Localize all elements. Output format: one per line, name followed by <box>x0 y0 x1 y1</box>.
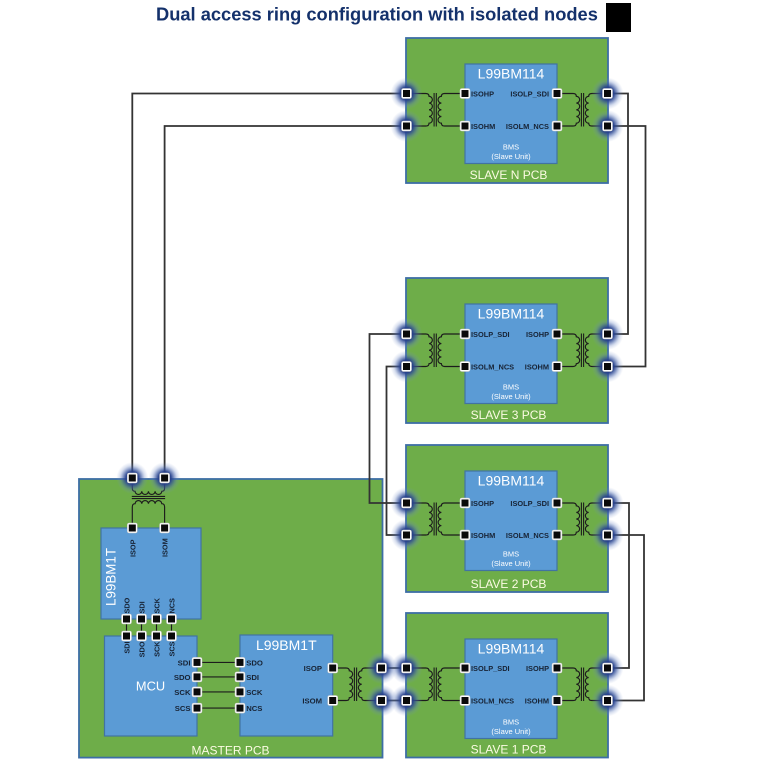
svg-text:SDO: SDO <box>123 597 132 613</box>
svg-text:SLAVE 3 PCB: SLAVE 3 PCB <box>471 408 547 422</box>
svg-text:ISOP: ISOP <box>128 539 137 557</box>
svg-text:ISOLP_SDI: ISOLP_SDI <box>510 499 549 508</box>
svg-text:ISOHP: ISOHP <box>526 330 549 339</box>
svg-text:BMS: BMS <box>503 550 519 559</box>
svg-text:(Slave Unit): (Slave Unit) <box>491 152 531 161</box>
svg-text:ISOLP_SDI: ISOLP_SDI <box>471 664 510 673</box>
svg-text:SCK: SCK <box>153 641 162 657</box>
svg-text:(Slave Unit): (Slave Unit) <box>491 392 531 401</box>
svg-text:SDO: SDO <box>138 641 147 657</box>
svg-text:ISOLP_SDI: ISOLP_SDI <box>471 330 510 339</box>
svg-text:L99BM1T: L99BM1T <box>104 548 119 606</box>
svg-text:ISOHM: ISOHM <box>471 122 495 131</box>
svg-text:SCS: SCS <box>175 704 191 713</box>
svg-text:SDO: SDO <box>174 673 191 682</box>
svg-text:Dual access ring configuration: Dual access ring configuration with isol… <box>156 4 598 25</box>
svg-text:SCK: SCK <box>153 597 162 613</box>
svg-text:ISOLM_NCS: ISOLM_NCS <box>471 696 514 705</box>
svg-text:SDI: SDI <box>178 658 191 667</box>
svg-text:ISOLP_SDI: ISOLP_SDI <box>510 89 549 98</box>
svg-text:SDO: SDO <box>246 658 263 667</box>
svg-text:BMS: BMS <box>503 718 519 727</box>
svg-text:SDI: SDI <box>123 642 132 654</box>
svg-text:ISOP: ISOP <box>304 664 322 673</box>
svg-text:L99BM114: L99BM114 <box>478 66 545 82</box>
svg-text:NCS: NCS <box>168 598 177 614</box>
svg-text:(Slave Unit): (Slave Unit) <box>491 727 531 736</box>
svg-text:ISOM: ISOM <box>160 538 169 557</box>
svg-text:ISOHM: ISOHM <box>471 531 495 540</box>
svg-text:ISOHM: ISOHM <box>525 696 549 705</box>
svg-text:BMS: BMS <box>503 143 519 152</box>
svg-text:ISOHP: ISOHP <box>471 499 494 508</box>
svg-text:ISOHP: ISOHP <box>471 89 494 98</box>
svg-text:ISOLM_NCS: ISOLM_NCS <box>506 122 549 131</box>
svg-text:MCU: MCU <box>136 679 165 694</box>
svg-text:ISOM: ISOM <box>302 697 322 706</box>
svg-text:ISOLM_NCS: ISOLM_NCS <box>506 531 549 540</box>
svg-text:SLAVE 1 PCB: SLAVE 1 PCB <box>471 742 547 756</box>
svg-text:ISOHP: ISOHP <box>526 664 549 673</box>
svg-text:SLAVE 2 PCB: SLAVE 2 PCB <box>471 577 547 591</box>
svg-text:SCS: SCS <box>168 641 177 656</box>
svg-text:L99BM1T: L99BM1T <box>256 637 317 653</box>
svg-text:ISOLM_NCS: ISOLM_NCS <box>471 362 514 371</box>
svg-text:L99BM114: L99BM114 <box>478 306 545 322</box>
svg-text:(Slave Unit): (Slave Unit) <box>491 559 531 568</box>
svg-text:NCS: NCS <box>246 704 262 713</box>
svg-text:SLAVE N PCB: SLAVE N PCB <box>470 168 548 182</box>
svg-text:SCK: SCK <box>246 688 263 697</box>
svg-text:ISOHM: ISOHM <box>525 362 549 371</box>
svg-text:BMS: BMS <box>503 383 519 392</box>
svg-text:SDI: SDI <box>246 673 259 682</box>
svg-text:L99BM114: L99BM114 <box>478 473 545 489</box>
svg-text:SCK: SCK <box>174 688 191 697</box>
svg-text:L99BM114: L99BM114 <box>478 641 545 657</box>
svg-text:SDI: SDI <box>138 601 147 613</box>
svg-text:MASTER PCB: MASTER PCB <box>191 744 269 758</box>
